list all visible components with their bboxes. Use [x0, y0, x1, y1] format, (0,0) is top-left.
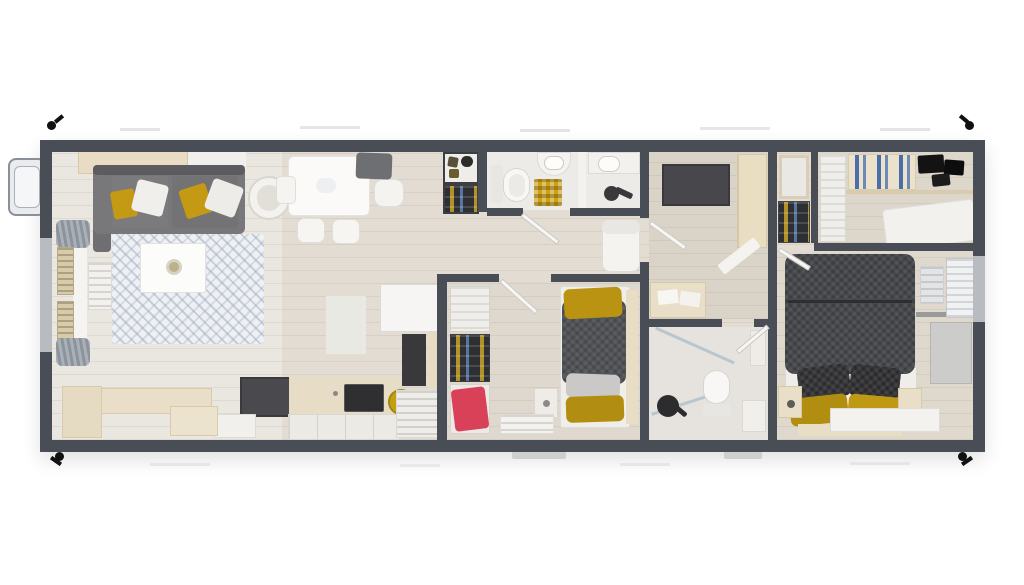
kitchen-cooktop: [344, 384, 384, 412]
bedroom2-wardrobe-shelves: [450, 334, 490, 382]
column-mirror: [779, 155, 809, 199]
master-window-blind: [946, 258, 974, 318]
kitchen-fridge: [380, 284, 444, 332]
louvered-cabinet: [88, 262, 112, 310]
hitch-inner: [14, 166, 40, 208]
bath2-cabinet: [742, 400, 766, 432]
shoe-shelf-item-3: [449, 169, 459, 178]
bath2-toilet-cistern: [703, 404, 730, 416]
bedroom2-pillow-yellow-top: [563, 287, 622, 320]
wall-mid-lower: [640, 262, 649, 440]
floorplan-render: [0, 0, 1024, 585]
bath2-toilet-bowl: [703, 370, 730, 404]
bath1-wall-basin-bowl: [544, 156, 564, 170]
floorplan-canvas: [0, 0, 1024, 585]
smudge-top-3: [520, 129, 570, 132]
kitchen-runner-mat: [326, 296, 366, 354]
closet-hanging-rail: [848, 154, 916, 190]
window-sill-shelf: [73, 242, 87, 348]
bedroom2-bench: [500, 414, 554, 434]
smudge-top-4: [700, 127, 770, 130]
wall-outer-top: [40, 140, 985, 152]
bedroom2-red-clothes: [451, 386, 490, 432]
curtain-lower: [56, 338, 90, 366]
master-foot-bench: [830, 408, 940, 432]
master-wall-vent: [920, 266, 944, 304]
smudge-bottom-3: [620, 463, 670, 466]
wall-bath2-top-a: [649, 319, 722, 327]
master-duvet-fold: [788, 300, 912, 303]
wall-mid-upper: [640, 152, 649, 218]
shoe-shelf-item-2: [461, 156, 473, 167]
kitchen-knob: [333, 391, 338, 396]
dining-chair-south-2: [332, 219, 360, 244]
dining-stools-dark: [356, 152, 393, 179]
kitchen-oven: [402, 334, 426, 386]
sofa-backrest: [93, 165, 245, 175]
smudge-bottom-4: [850, 462, 910, 465]
bath1-toilet-cistern: [491, 165, 503, 203]
wall-right-divider: [768, 152, 777, 440]
bedroom2-nightstand-knob: [543, 400, 550, 407]
wall-bedroom2-top-a: [437, 274, 499, 282]
master-gray-cabinet: [930, 322, 972, 384]
curtain-upper: [56, 220, 90, 248]
wall-bedroom2-left: [437, 274, 447, 440]
wall-outer-bottom: [40, 440, 985, 452]
corner-jack-top-left-arm: [54, 114, 64, 123]
window-right-wall: [973, 256, 985, 322]
wall-bath1-bottom-b: [570, 208, 640, 216]
dining-centerpiece: [316, 178, 336, 193]
bedroom2-wardrobe-towels: [450, 286, 490, 332]
window-blind-1: [57, 247, 74, 295]
shoe-shelf-lower: [443, 184, 479, 214]
column-shoe-cubbies: [778, 201, 810, 243]
smudge-bottom-2: [400, 464, 440, 467]
bath1-toilet-seat: [509, 174, 525, 197]
master-duvet: [785, 254, 915, 374]
smudge-bottom-1: [150, 463, 210, 466]
wall-master-top: [814, 243, 973, 251]
smudge-top-2: [300, 126, 360, 129]
dining-chair-east: [374, 179, 404, 207]
wall-bedroom2-top-b: [551, 274, 640, 282]
shoe-shelf-item-1: [447, 156, 459, 168]
bath1-vanity-sink: [598, 156, 620, 172]
storage-bench-step: [170, 406, 218, 436]
wall-bath1-bottom-a: [487, 208, 523, 216]
bath1-mat: [534, 179, 562, 206]
tv-shelf: [214, 414, 256, 438]
kitchen-cabinet-fronts: [288, 414, 400, 440]
corner-jack-top-right-arm: [959, 114, 969, 123]
closet-box-3: [931, 173, 950, 187]
closet-box-1: [918, 154, 945, 173]
closet-shelf-edge: [846, 190, 974, 194]
smudge-top-1: [120, 128, 160, 131]
smudge-top-5: [880, 128, 930, 131]
bedroom2-pillow-yellow-bottom: [566, 395, 625, 423]
master-nightstand-left-knob: [787, 400, 795, 408]
window-left-wall: [40, 238, 52, 352]
wall-bath1-left: [478, 152, 487, 212]
closet-linen-tower: [820, 154, 846, 242]
dressing-tv-panel: [662, 164, 730, 206]
dressing-wardrobe: [737, 154, 767, 248]
bath1-partition: [578, 152, 586, 210]
coffee-table-plant: [169, 262, 179, 272]
wall-closet-divider: [811, 152, 818, 243]
dressing-papers-2: [679, 291, 701, 308]
dressing-papers-1: [657, 289, 678, 305]
hall-seat-arm: [602, 220, 640, 234]
dining-chair-south-1: [297, 218, 325, 243]
dining-chair-west: [276, 176, 296, 204]
bedroom2-bed-rail: [626, 290, 638, 424]
storage-bench-corner: [62, 386, 102, 438]
